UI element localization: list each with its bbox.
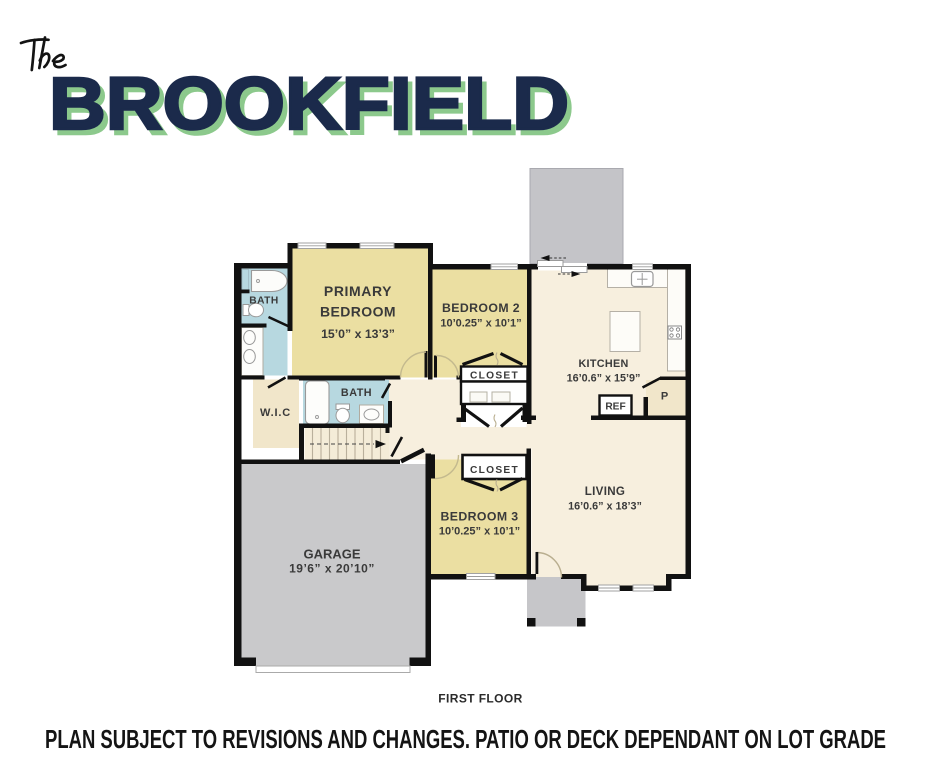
svg-text:15’0” x 13’3”: 15’0” x 13’3”: [321, 327, 395, 341]
svg-text:W.I.C: W.I.C: [260, 407, 291, 419]
svg-text:BEDROOM 3: BEDROOM 3: [440, 510, 518, 524]
svg-text:P: P: [661, 391, 668, 403]
svg-text:LIVING: LIVING: [585, 485, 625, 498]
svg-text:BATH: BATH: [249, 296, 279, 307]
svg-text:PLAN SUBJECT TO REVISIONS AND: PLAN SUBJECT TO REVISIONS AND CHANGES. P…: [45, 726, 886, 754]
svg-text:BEDROOM 2: BEDROOM 2: [442, 301, 520, 315]
svg-text:CLOSET: CLOSET: [470, 465, 519, 476]
svg-text:PRIMARY: PRIMARY: [324, 283, 392, 299]
svg-text:CLOSET: CLOSET: [470, 370, 519, 381]
svg-text:16’0.6” x 15’9”: 16’0.6” x 15’9”: [567, 373, 641, 385]
svg-text:16’0.6” x 18’3”: 16’0.6” x 18’3”: [568, 501, 642, 513]
svg-text:BATH: BATH: [341, 387, 372, 399]
svg-text:19’6” x 20’10”: 19’6” x 20’10”: [289, 562, 375, 576]
svg-text:REF: REF: [605, 401, 625, 412]
svg-text:10’0.25” x 10’1”: 10’0.25” x 10’1”: [439, 525, 520, 537]
svg-text:10’0.25” x 10’1”: 10’0.25” x 10’1”: [440, 317, 521, 329]
svg-text:GARAGE: GARAGE: [303, 547, 360, 562]
svg-text:KITCHEN: KITCHEN: [578, 358, 628, 370]
svg-text:FIRST FLOOR: FIRST FLOOR: [438, 692, 522, 706]
svg-text:BEDROOM: BEDROOM: [320, 304, 396, 320]
svg-text:BROOKFIELD: BROOKFIELD: [49, 62, 569, 145]
